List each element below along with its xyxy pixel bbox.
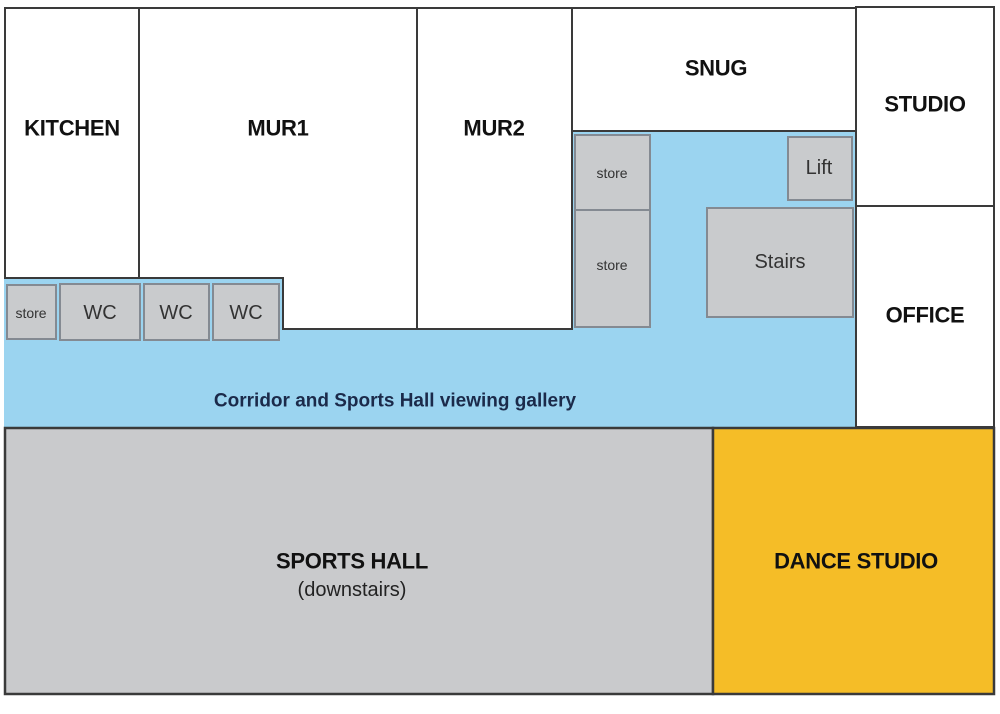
store-left-label: store xyxy=(15,305,46,321)
dance-studio-label: DANCE STUDIO xyxy=(774,549,938,574)
floor-plan: KITCHEN MUR1 MUR2 SNUG STUDIO OFFICE sto… xyxy=(0,0,1000,714)
office-label: OFFICE xyxy=(886,303,965,328)
store-upper-label: store xyxy=(596,165,627,181)
sports-hall-sublabel: (downstairs) xyxy=(298,579,407,601)
kitchen-label: KITCHEN xyxy=(24,116,120,141)
mur2-label: MUR2 xyxy=(463,116,524,141)
store-lower-label: store xyxy=(596,257,627,273)
wc-3-label: WC xyxy=(229,302,262,324)
sports-hall-label: SPORTS HALL xyxy=(276,549,428,574)
wc-2-label: WC xyxy=(159,302,192,324)
stairs-label: Stairs xyxy=(754,251,805,273)
room-kitchen xyxy=(5,8,139,278)
snug-label: SNUG xyxy=(685,56,747,81)
studio-label: STUDIO xyxy=(884,92,966,117)
room-mur2 xyxy=(417,8,572,329)
lift-label: Lift xyxy=(806,157,833,179)
corridor-label: Corridor and Sports Hall viewing gallery xyxy=(214,391,577,412)
wc-1-label: WC xyxy=(83,302,116,324)
mur1-label: MUR1 xyxy=(247,116,308,141)
